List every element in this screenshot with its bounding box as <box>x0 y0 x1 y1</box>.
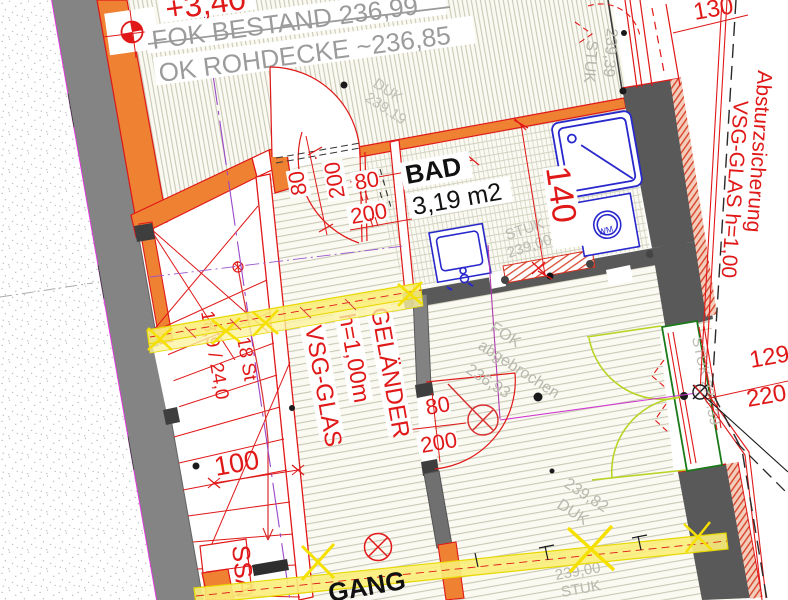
svg-text:80: 80 <box>424 391 452 420</box>
svg-text:STUK: STUK <box>580 40 600 84</box>
svg-text:239,39: 239,39 <box>600 28 620 78</box>
svg-text:80: 80 <box>283 169 312 197</box>
svg-text:80: 80 <box>353 166 381 195</box>
svg-text:140: 140 <box>538 164 584 225</box>
